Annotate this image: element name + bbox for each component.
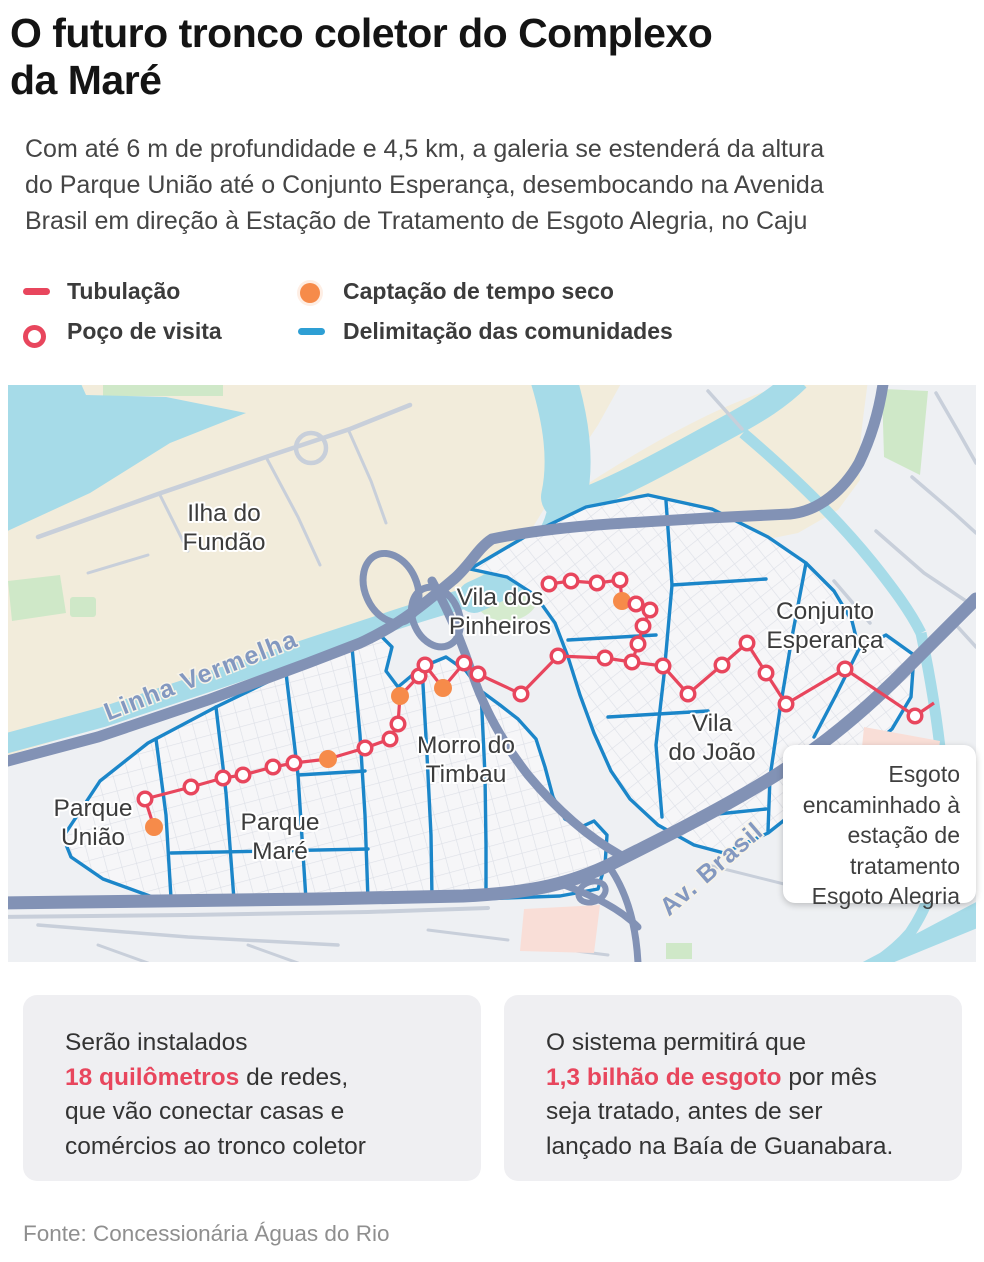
info-box-esgoto: O sistema permitirá que 1,3 bilhão de es… [504, 995, 962, 1181]
manhole-icon [715, 658, 729, 672]
manhole-icon [631, 637, 645, 651]
manhole-icon [564, 574, 578, 588]
manhole-icon [287, 756, 301, 770]
manhole-icon [613, 573, 627, 587]
manhole-icon [740, 636, 754, 650]
manhole-icon [418, 658, 432, 672]
page-title: O futuro tronco coletor do Complexo da M… [10, 10, 970, 104]
manhole-icon [216, 771, 230, 785]
manhole-icon [629, 597, 643, 611]
legend-item-tubulacao: Tubulação [67, 278, 180, 305]
manhole-icon [656, 659, 670, 673]
manhole-icon [625, 655, 639, 669]
manhole-ring-icon [23, 325, 46, 348]
legend-item-poco: Poço de visita [67, 318, 222, 345]
manhole-icon [138, 792, 152, 806]
manhole-icon [636, 619, 650, 633]
page-title-line2: da Maré [10, 57, 970, 104]
intake-dot-icon [300, 283, 320, 303]
manhole-icon [236, 768, 250, 782]
legend-item-delimitacao: Delimitação das comunidades [343, 318, 673, 345]
intake-icon [145, 818, 163, 836]
pipeline-line-icon [23, 288, 50, 295]
page-title-line1: O futuro tronco coletor do Complexo [10, 10, 970, 57]
manhole-icon [514, 687, 528, 701]
intake-icon [434, 679, 452, 697]
manhole-icon [383, 732, 397, 746]
manhole-icon [542, 577, 556, 591]
manhole-icon [457, 656, 471, 670]
manhole-icon [551, 649, 565, 663]
source-credit: Fonte: Concessionária Águas do Rio [23, 1221, 389, 1247]
manhole-icon [590, 576, 604, 590]
manhole-icon [184, 780, 198, 794]
manhole-icon [759, 666, 773, 680]
intake-icon [319, 750, 337, 768]
legend-item-captacao: Captação de tempo seco [343, 278, 614, 305]
map: Ilha doFundão Vila dosPinheiros Conjunto… [8, 385, 976, 962]
manhole-icon [358, 741, 372, 755]
manhole-icon [643, 603, 657, 617]
manhole-icon [681, 687, 695, 701]
highlight-18-quilometros: 18 quilômetros [65, 1064, 239, 1091]
manhole-icon [471, 667, 485, 681]
intake-icon [391, 687, 409, 705]
highlight-1-3-bilhao: 1,3 bilhão de esgoto [546, 1064, 782, 1091]
info-box-redes: Serão instalados 18 quilômetros de redes… [23, 995, 481, 1181]
infographic: O futuro tronco coletor do Complexo da M… [0, 0, 984, 1262]
manhole-icon [266, 760, 280, 774]
manhole-icon [908, 709, 922, 723]
map-callout-esgoto-alegria: Esgoto encaminhado à estação de tratamen… [783, 745, 976, 903]
manhole-icon [779, 697, 793, 711]
boundary-line-icon [298, 328, 325, 335]
subtitle: Com até 6 m de profundidade e 4,5 km, a … [25, 131, 975, 239]
manhole-icon [598, 651, 612, 665]
manhole-icon [391, 717, 405, 731]
manhole-icon [838, 662, 852, 676]
